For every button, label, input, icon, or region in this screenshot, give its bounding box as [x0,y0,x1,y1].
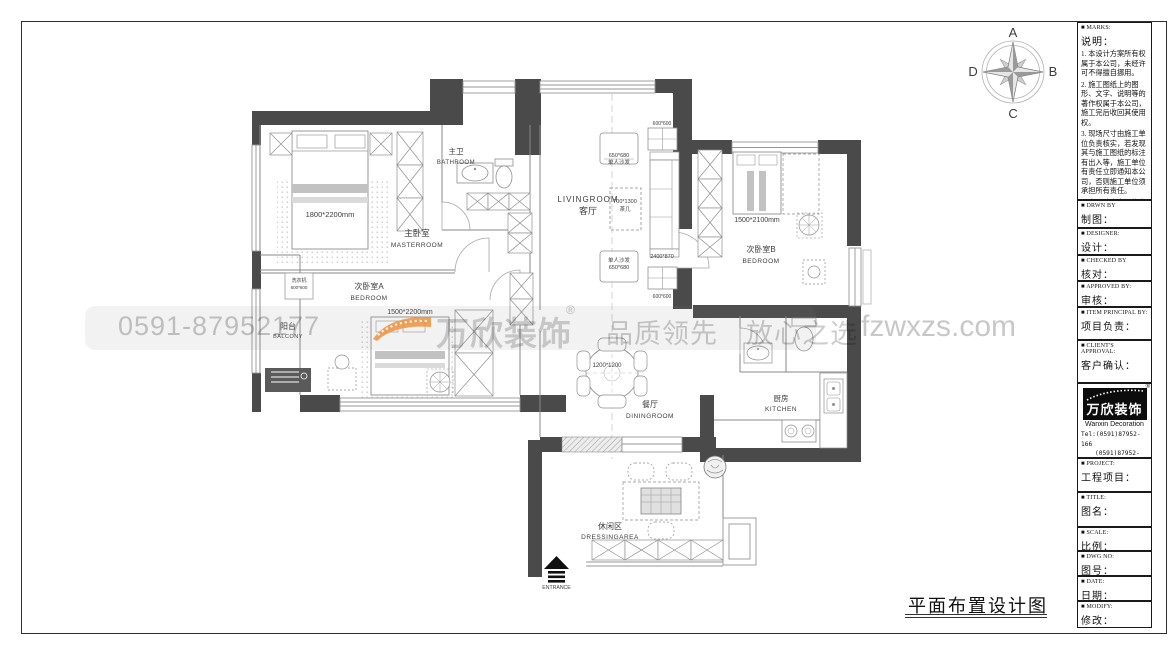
bedroom-b-label-cn: 次卧室B [746,244,775,254]
titleblock-marks: ■ MARKS: 说明： 1. 本设计方案所有权属于本公司，未经许可不得擅自挪用… [1077,22,1152,200]
approved-label-cn: 审核： [1081,292,1148,307]
brand-swoosh-icon [372,315,432,341]
compass-n: A [1009,25,1018,40]
principal-label-cn: 项目负责： [1081,318,1148,333]
sheet-title-rule [905,617,1047,618]
date-label-en: ■ DATE: [1081,579,1148,585]
bathroom-label-en: BATHROOM [437,160,475,166]
titleblock-project: ■ PROJECT: 工程项目： [1077,458,1152,492]
bathroom-label-cn: 主卫 [449,146,464,156]
titleblock-principal: ■ ITEM PRINCIPAL BY: 项目负责： [1077,307,1152,340]
titleblock-scale: ■ SCALE: 比例： [1077,527,1152,551]
master-bed-dim: 1800*2200mm [306,210,355,219]
designer-label-cn: 设计： [1081,239,1148,254]
title-label-cn: 图名： [1081,503,1148,518]
modify-label-en: ■ MODIFY: [1081,604,1148,610]
washer-dim: 600*600 [291,285,308,290]
note-1: 1. 本设计方案所有权属于本公司，未经许可不得擅自挪用。 [1081,50,1148,79]
titleblock-approved: ■ APPROVED BY: 审核： [1077,281,1152,307]
contact-tel1: Tel:(0591)87952-166 [1081,430,1148,449]
compass-e: B [1049,64,1058,79]
marks-label-cn: 说明： [1081,33,1148,48]
armchair-dim-top: 650*680 [609,153,630,159]
drawn-label-cn: 制图： [1081,211,1148,226]
titleblock-logo: ® 万欣装饰 Wanxin Decoration Tel:(0591)87952… [1077,383,1152,458]
dressing-label-en: DRESSINGAREA [581,534,639,541]
armchair-dim-bottom: 650*680 [609,265,630,271]
title-label-en: ■ TITLE: [1081,495,1148,501]
marks-notes: 1. 本设计方案所有权属于本公司，未经许可不得擅自挪用。 2. 施工图纸上的图形… [1081,50,1148,200]
living-label-cn: 客厅 [579,205,597,216]
registered-mark: ® [566,303,575,317]
titleblock-dwg-no: ■ DWG NO: 图号： [1077,551,1152,576]
titleblock-client-approval: ■ CLIENT'S APPROVAL: 客户确认： [1077,340,1152,383]
kitchen-label-cn: 厨房 [774,393,789,403]
titleblock-checked: ■ CHECKED BY 核对： [1077,255,1152,281]
titleblock-date: ■ DATE: 日期： [1077,576,1152,601]
watermark-slogan: 品质领先 放心之选 [606,312,858,351]
bedroom-b-label-en: BEDROOM [742,258,779,265]
titleblock-modify: ■ MODIFY: 修改： [1077,601,1152,628]
note-2: 2. 施工图纸上的图形、文字、说明等的著作权属于本公司，施工完后收回其使用权。 [1081,81,1148,129]
side-table-dim-bottom: 600*600 [653,294,672,300]
compass-w: D [968,64,977,79]
entrance-arrow-icon: ENTRANCE [542,556,571,591]
note-3: 3. 现场尺寸由施工单位负责核实，若发现其与施工图纸的标注有出入等，施工单位有责… [1081,130,1148,197]
entrance-label: ENTRANCE [542,585,571,591]
dressing-label-cn: 休闲区 [598,521,622,531]
titleblock-designer: ■ DESIGNER: 设计： [1077,228,1152,255]
checked-label-cn: 核对： [1081,266,1148,281]
dwg-label-cn: 图号： [1081,562,1148,576]
dining-label-en: DININGROOM [626,413,674,420]
approved-label-en: ■ APPROVED BY: [1081,284,1148,290]
contact-tel2: (0591)87952-177 [1081,449,1148,458]
project-label-cn: 工程项目： [1081,469,1148,484]
company-logo: 万欣装饰 [1083,388,1147,420]
checked-label-en: ■ CHECKED BY [1081,258,1148,264]
logo-contacts: Tel:(0591)87952-166 (0591)87952-177 Fax:… [1081,430,1148,458]
date-label-cn: 日期： [1081,587,1148,601]
bedroom-a-label-en: BEDROOM [350,295,387,302]
compass-s: C [1008,106,1017,121]
designer-label-en: ■ DESIGNER: [1081,231,1148,237]
room-living: 650*680 单人沙发 单人沙发 650*680 700*1300 茶几 24… [557,121,679,300]
principal-label-en: ■ ITEM PRINCIPAL BY: [1081,310,1148,316]
bedroom-b-bed-dim: 1500*2100mm [734,217,780,224]
titleblock-drawn: ■ DRWN BY 制图： [1077,200,1152,228]
logo-brand-text: 万欣装饰 [1083,399,1147,418]
sofa-dim: 2400*870 [650,254,674,260]
modify-label-cn: 修改： [1081,612,1148,627]
coffee-table-label: 茶几 [619,205,631,213]
project-label-en: ■ PROJECT: [1081,461,1148,467]
watermark-website: fzwxzs.com [861,310,1016,344]
drawing-sheet: { "sheet": { "title": "平面布置设计图" }, "comp… [0,0,1171,654]
compass-icon: A B C D [968,25,1057,121]
hatched-walls [562,437,622,452]
armchair-label-bottom: 单人沙发 [608,256,631,264]
side-table-dim-top: 600*600 [653,121,672,127]
dining-label-cn: 餐厅 [642,400,658,409]
sheet-title-rule [905,614,1047,615]
watermark-phone: 0591-87952177 [118,311,320,342]
kitchen-label-en: KITCHEN [765,406,797,413]
client-label-cn: 客户确认： [1081,357,1148,372]
dwg-label-en: ■ DWG NO: [1081,554,1148,560]
scale-label-en: ■ SCALE: [1081,530,1148,536]
master-label-en: MASTERROOM [391,242,443,249]
room-dressing: 休闲区 DRESSINGAREA [581,456,726,541]
bedroom-a-label-cn: 次卧室A [354,281,384,291]
drawn-label-en: ■ DRWN BY [1081,203,1148,209]
scale-label-cn: 比例： [1081,538,1148,551]
room-bathroom: 主卫 BATHROOM [437,146,513,188]
marks-label-en: ■ MARKS: [1081,25,1148,31]
logo-subtitle: Wanxin Decoration [1081,421,1148,428]
watermark-brand: 万欣装饰 [436,307,572,355]
washer-label: 洗衣机 [291,277,306,284]
living-label-en: LIVINGROOM [557,195,618,204]
room-bedroom-b: 1500*2100mm 次卧室B BEDROOM [733,152,825,284]
titleblock-title: ■ TITLE: 图名： [1077,492,1152,527]
client-label-en: ■ CLIENT'S APPROVAL: [1081,343,1148,355]
armchair-label-top: 单人沙发 [608,158,631,166]
master-label-cn: 主卧室 [404,228,430,238]
dining-table-dim: 1200*1200 [592,363,622,369]
